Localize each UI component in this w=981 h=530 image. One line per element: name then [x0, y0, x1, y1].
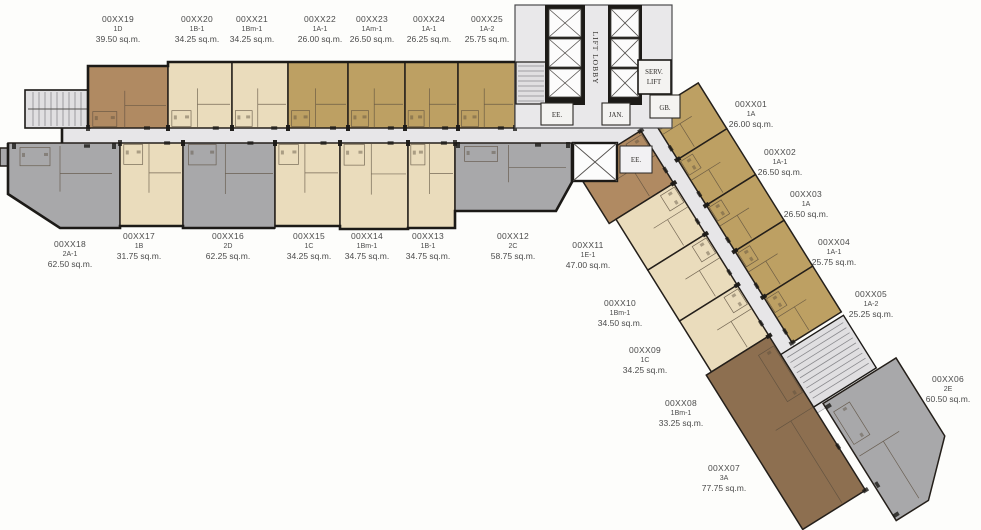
- unit-area: 31.75 sq.m.: [117, 251, 161, 262]
- unit-area: 26.25 sq.m.: [407, 34, 451, 45]
- unit-00XX25-shape: [458, 62, 515, 128]
- lower-lift-shaft: [573, 143, 617, 181]
- unit-area: 39.50 sq.m.: [96, 34, 140, 45]
- unit-area: 26.00 sq.m.: [298, 34, 342, 45]
- unit-label-00XX10: 00XX101Bm-134.50 sq.m.: [598, 298, 642, 330]
- bottom-row-units: [0, 140, 572, 229]
- unit-area: 34.25 sq.m.: [175, 34, 219, 45]
- unit-area: 62.25 sq.m.: [206, 251, 250, 262]
- unit-code: 00XX25: [465, 14, 509, 25]
- unit-type: 1E-1: [566, 251, 610, 260]
- unit-type: 1Bm-1: [598, 309, 642, 318]
- unit-type: 1B-1: [406, 242, 450, 251]
- unit-type: 2A-1: [48, 250, 92, 259]
- unit-area: 47.00 sq.m.: [566, 260, 610, 271]
- unit-label-00XX09: 00XX091C34.25 sq.m.: [623, 345, 667, 377]
- unit-label-00XX19: 00XX191D39.50 sq.m.: [96, 14, 140, 46]
- stairwell-northwest: [25, 90, 90, 128]
- unit-type: 1Am-1: [350, 25, 394, 34]
- unit-label-00XX23: 00XX231Am-126.50 sq.m.: [350, 14, 394, 46]
- unit-area: 33.25 sq.m.: [659, 418, 703, 429]
- unit-area: 26.50 sq.m.: [350, 34, 394, 45]
- unit-code: 00XX16: [206, 231, 250, 242]
- unit-00XX21-shape: [232, 62, 288, 128]
- unit-area: 34.75 sq.m.: [345, 251, 389, 262]
- unit-label-00XX12: 00XX122C58.75 sq.m.: [491, 231, 535, 263]
- unit-label-00XX02: 00XX021A-126.50 sq.m.: [758, 147, 802, 179]
- unit-label-00XX05: 00XX051A-225.25 sq.m.: [849, 289, 893, 321]
- unit-00XX14-shape: [340, 143, 408, 229]
- gb-label: GB.: [659, 105, 670, 112]
- unit-type: 1A-2: [849, 300, 893, 309]
- unit-code: 00XX07: [702, 463, 746, 474]
- unit-label-00XX17: 00XX171B31.75 sq.m.: [117, 231, 161, 263]
- unit-code: 00XX11: [566, 240, 610, 251]
- unit-label-00XX24: 00XX241A-126.25 sq.m.: [407, 14, 451, 46]
- lift-bank-right: [608, 5, 642, 105]
- unit-area: 60.50 sq.m.: [926, 394, 970, 405]
- unit-area: 34.25 sq.m.: [287, 251, 331, 262]
- jan-label: JAN.: [609, 112, 623, 119]
- unit-label-00XX21: 00XX211Bm-134.25 sq.m.: [230, 14, 274, 46]
- unit-area: 34.50 sq.m.: [598, 318, 642, 329]
- service-lift-room: SERV. LIFT: [638, 60, 671, 94]
- unit-area: 26.50 sq.m.: [758, 167, 802, 178]
- gb-room: GB.: [650, 95, 680, 118]
- unit-00XX15-shape: [275, 143, 340, 226]
- ee-room-upper: EE.: [541, 103, 573, 125]
- unit-type: 1A-1: [407, 25, 451, 34]
- main-corridor: [62, 128, 660, 143]
- unit-code: 00XX21: [230, 14, 274, 25]
- unit-area: 34.25 sq.m.: [623, 365, 667, 376]
- unit-code: 00XX13: [406, 231, 450, 242]
- unit-00XX20-shape: [168, 62, 232, 128]
- unit-code: 00XX04: [812, 237, 856, 248]
- unit-label-00XX04: 00XX041A-125.75 sq.m.: [812, 237, 856, 269]
- unit-area: 25.75 sq.m.: [465, 34, 509, 45]
- unit-code: 00XX12: [491, 231, 535, 242]
- unit-type: 3A: [702, 474, 746, 483]
- unit-area: 62.50 sq.m.: [48, 259, 92, 270]
- unit-area: 25.75 sq.m.: [812, 257, 856, 268]
- unit-type: 1B-1: [175, 25, 219, 34]
- unit-00XX23-shape: [348, 62, 405, 128]
- unit-code: 00XX22: [298, 14, 342, 25]
- unit-area: 34.25 sq.m.: [230, 34, 274, 45]
- unit-area: 26.50 sq.m.: [784, 209, 828, 220]
- unit-code: 00XX17: [117, 231, 161, 242]
- unit-code: 00XX01: [729, 99, 773, 110]
- unit-code: 00XX08: [659, 398, 703, 409]
- unit-code: 00XX24: [407, 14, 451, 25]
- unit-00XX22-shape: [288, 62, 348, 128]
- unit-type: 1Bm-1: [659, 409, 703, 418]
- unit-code: 00XX06: [926, 374, 970, 385]
- unit-code: 00XX20: [175, 14, 219, 25]
- ee-lower-label: EE.: [631, 156, 642, 164]
- unit-label-00XX06: 00XX062E60.50 sq.m.: [926, 374, 970, 406]
- unit-code: 00XX05: [849, 289, 893, 300]
- serv-lift-label-line1: SERV.: [645, 69, 663, 76]
- unit-label-00XX15: 00XX151C34.25 sq.m.: [287, 231, 331, 263]
- unit-type: 1A-1: [812, 248, 856, 257]
- unit-code: 00XX14: [345, 231, 389, 242]
- unit-code: 00XX15: [287, 231, 331, 242]
- lift-lobby-label: LIFT LOBBY: [591, 32, 600, 85]
- lift-bank-left: [545, 5, 585, 105]
- unit-label-00XX22: 00XX221A-126.00 sq.m.: [298, 14, 342, 46]
- unit-00XX17-shape: [120, 143, 183, 226]
- unit-area: 77.75 sq.m.: [702, 483, 746, 494]
- ee-room-lower: EE.: [620, 146, 652, 173]
- unit-type: 1Bm-1: [230, 25, 274, 34]
- unit-type: 1C: [287, 242, 331, 251]
- unit-label-00XX13: 00XX131B-134.75 sq.m.: [406, 231, 450, 263]
- serv-lift-label-line2: LIFT: [647, 79, 662, 86]
- unit-label-00XX20: 00XX201B-134.25 sq.m.: [175, 14, 219, 46]
- unit-type: 1D: [96, 25, 140, 34]
- unit-00XX12-shape: [455, 143, 572, 211]
- top-row-units: [86, 62, 517, 131]
- unit-type: 1A-1: [298, 25, 342, 34]
- unit-label-00XX08: 00XX081Bm-133.25 sq.m.: [659, 398, 703, 430]
- unit-code: 00XX10: [598, 298, 642, 309]
- unit-type: 1C: [623, 356, 667, 365]
- jan-room: JAN.: [602, 103, 630, 125]
- unit-label-00XX18: 00XX182A-162.50 sq.m.: [48, 239, 92, 271]
- unit-type: 2C: [491, 242, 535, 251]
- unit-label-00XX11: 00XX111E-147.00 sq.m.: [566, 240, 610, 272]
- unit-00XX13-shape: [408, 143, 455, 228]
- unit-type: 1B: [117, 242, 161, 251]
- unit-type: 1A: [784, 200, 828, 209]
- unit-type: 2D: [206, 242, 250, 251]
- unit-label-00XX16: 00XX162D62.25 sq.m.: [206, 231, 250, 263]
- unit-label-00XX14: 00XX141Bm-134.75 sq.m.: [345, 231, 389, 263]
- unit-area: 58.75 sq.m.: [491, 251, 535, 262]
- unit-code: 00XX18: [48, 239, 92, 250]
- unit-area: 26.00 sq.m.: [729, 119, 773, 130]
- unit-area: 34.75 sq.m.: [406, 251, 450, 262]
- unit-00XX19-shape: [88, 66, 168, 128]
- unit-label-00XX03: 00XX031A26.50 sq.m.: [784, 189, 828, 221]
- unit-label-00XX25: 00XX251A-225.75 sq.m.: [465, 14, 509, 46]
- unit-type: 1A-1: [758, 158, 802, 167]
- unit-code: 00XX19: [96, 14, 140, 25]
- unit-type: 1A: [729, 110, 773, 119]
- unit-code: 00XX23: [350, 14, 394, 25]
- unit-00XX16-shape: [183, 143, 275, 228]
- unit-code: 00XX09: [623, 345, 667, 356]
- stairwell-core: [516, 62, 546, 104]
- unit-code: 00XX03: [784, 189, 828, 200]
- unit-type: 2E: [926, 385, 970, 394]
- unit-label-00XX01: 00XX011A26.00 sq.m.: [729, 99, 773, 131]
- unit-area: 25.25 sq.m.: [849, 309, 893, 320]
- unit-label-00XX07: 00XX073A77.75 sq.m.: [702, 463, 746, 495]
- unit-type: 1A-2: [465, 25, 509, 34]
- unit-code: 00XX02: [758, 147, 802, 158]
- floor-plan: LIFT LOBBY SERV. LIFT GB. JAN. EE.: [0, 0, 981, 530]
- unit-type: 1Bm-1: [345, 242, 389, 251]
- ee-upper-label: EE.: [552, 111, 563, 119]
